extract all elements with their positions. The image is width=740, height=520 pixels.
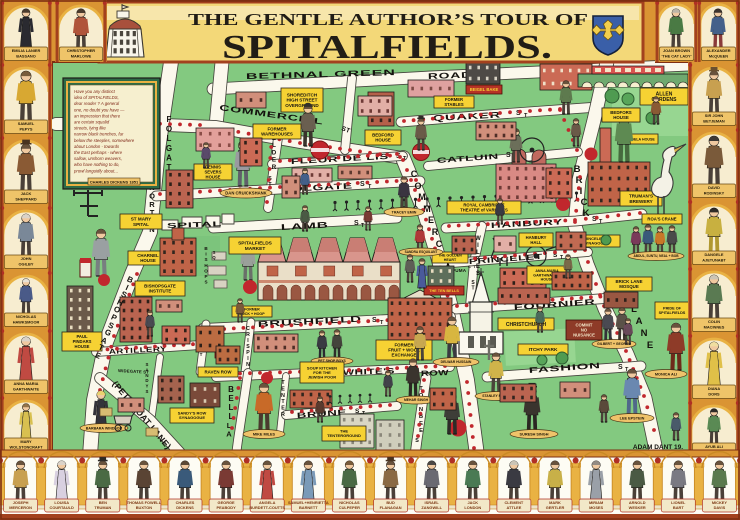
svg-text:OGILBY: OGILBY — [19, 262, 34, 267]
svg-text:ATTLEE: ATTLEE — [506, 505, 521, 510]
svg-text:OVERGROUND: OVERGROUND — [285, 103, 319, 108]
svg-text:T: T — [471, 286, 474, 292]
svg-text:E: E — [272, 157, 276, 164]
svg-text:TRACEY EMIN: TRACEY EMIN — [392, 210, 417, 214]
svg-text:JOHN: JOHN — [21, 256, 32, 261]
svg-text:HOUSE: HOUSE — [375, 138, 391, 143]
svg-text:A: A — [166, 153, 172, 162]
svg-text:L: L — [476, 250, 480, 256]
svg-text:ITCHY PARK: ITCHY PARK — [529, 347, 558, 353]
svg-text:CT: CT — [468, 264, 478, 269]
svg-text:RODINSKY: RODINSKY — [704, 191, 725, 196]
svg-text:HALL: HALL — [530, 240, 542, 245]
svg-text:BEIGEL BAKE: BEIGEL BAKE — [470, 87, 499, 92]
svg-text:ALEXANDER: ALEXANDER — [706, 48, 730, 53]
svg-text:who have nothing to do,: who have nothing to do, — [74, 162, 120, 167]
svg-text:MARLOWE: MARLOWE — [71, 54, 92, 59]
svg-text:HOUSE: HOUSE — [613, 115, 629, 120]
svg-text:T: T — [560, 255, 566, 261]
svg-text:streets, lying like: streets, lying like — [74, 126, 106, 131]
svg-text:L: L — [229, 403, 234, 412]
svg-text:SANDRA ESQUILANT: SANDRA ESQUILANT — [405, 250, 438, 254]
svg-text:A: A — [636, 316, 643, 327]
svg-text:A: A — [226, 430, 232, 439]
svg-text:JEWISH POOR: JEWISH POOR — [308, 375, 336, 380]
svg-text:MARKET: MARKET — [245, 246, 266, 252]
svg-text:narrow black trenches, far: narrow black trenches, far — [74, 132, 124, 137]
svg-text:WOLSTONCRAFT: WOLSTONCRAFT — [10, 445, 44, 450]
svg-text:NICHOLAS: NICHOLAS — [16, 314, 37, 319]
svg-text:R: R — [281, 412, 285, 418]
svg-text:E: E — [281, 386, 285, 392]
svg-text:N: N — [281, 393, 285, 399]
svg-text:R: R — [432, 227, 439, 237]
svg-text:LONDON: LONDON — [464, 505, 481, 510]
svg-text:AYUB ALI: AYUB ALI — [705, 444, 723, 449]
svg-text:E: E — [281, 406, 285, 412]
svg-text:DAVIS: DAVIS — [714, 505, 726, 510]
svg-text:S: S — [146, 389, 149, 394]
svg-text:MEHAR SINGH: MEHAR SINGH — [404, 398, 429, 402]
svg-text:COLIN: COLIN — [708, 319, 720, 324]
svg-text:E: E — [228, 394, 234, 403]
svg-text:BURDETT-COUTTS: BURDETT-COUTTS — [249, 505, 285, 510]
svg-text:CHARLES DICKENS 1851: CHARLES DICKENS 1851 — [90, 179, 139, 184]
svg-text:BETJEMAN: BETJEMAN — [703, 119, 725, 124]
svg-text:ROA'S CRANE: ROA'S CRANE — [647, 217, 676, 222]
svg-text:ZANGWILL: ZANGWILL — [421, 505, 442, 510]
svg-text:PEABODY: PEABODY — [216, 505, 236, 510]
svg-text:WAREHOUSES: WAREHOUSES — [261, 132, 293, 137]
svg-text:one, no doubt you have —: one, no doubt you have — — [74, 107, 125, 112]
svg-text:sallow, unshorn weavers,: sallow, unshorn weavers, — [74, 156, 122, 161]
svg-text:HOUSE: HOUSE — [206, 174, 221, 179]
svg-text:ABDUL, SUNTU, NEAL + BOB: ABDUL, SUNTU, NEAL + BOB — [633, 254, 679, 258]
svg-text:WESKER: WESKER — [629, 505, 646, 510]
svg-text:O: O — [204, 268, 208, 273]
svg-text:S: S — [146, 362, 149, 367]
svg-text:prowl languidly about...: prowl languidly about... — [73, 168, 118, 173]
svg-text:SPITAL: SPITAL — [133, 222, 149, 227]
svg-text:idea of SPITALFIELDS,: idea of SPITALFIELDS, — [74, 95, 119, 100]
svg-text:DIANA: DIANA — [708, 386, 721, 391]
svg-text:L: L — [167, 134, 172, 143]
svg-text:AJETUNABT: AJETUNABT — [702, 258, 726, 263]
svg-text:Y: Y — [146, 384, 149, 389]
svg-text:McQUEEN: McQUEEN — [709, 54, 728, 59]
svg-text:S: S — [204, 280, 207, 285]
svg-text:BUXTON: BUXTON — [136, 505, 153, 510]
svg-text:ANNA MARIA: ANNA MARIA — [14, 381, 39, 386]
svg-text:MARY: MARY — [20, 439, 32, 444]
svg-text:T: T — [599, 219, 605, 225]
svg-text:DORS: DORS — [708, 392, 720, 397]
svg-text:an impression that there: an impression that there — [74, 113, 121, 118]
svg-text:O: O — [166, 125, 172, 134]
svg-text:C: C — [581, 197, 588, 208]
svg-text:THE GENTLE AUTHOR’S TOUR OF: THE GENTLE AUTHOR’S TOUR OF — [188, 10, 588, 29]
svg-text:E: E — [647, 340, 653, 351]
svg-text:JOAN BROWN: JOAN BROWN — [663, 48, 690, 53]
svg-text:Have you any distinct: Have you any distinct — [74, 89, 116, 94]
svg-text:DELWAR HUSSAIN: DELWAR HUSSAIN — [441, 360, 472, 364]
svg-text:N: N — [246, 362, 250, 368]
svg-text:TENTERGROUND: TENTERGROUND — [327, 433, 361, 438]
svg-text:are certain squalid: are certain squalid — [74, 120, 110, 125]
svg-text:JACK: JACK — [21, 191, 32, 196]
svg-text:BARNETT: BARNETT — [299, 505, 318, 510]
svg-text:DICKENS: DICKENS — [176, 505, 194, 510]
svg-text:BARBARA WINDSOR: BARBARA WINDSOR — [86, 426, 123, 430]
svg-text:P: P — [204, 274, 207, 279]
svg-text:THE TEN BELLS: THE TEN BELLS — [429, 289, 459, 293]
svg-text:T: T — [380, 320, 386, 326]
svg-text:dear reader ? A general: dear reader ? A general — [74, 101, 120, 106]
svg-text:MOSES: MOSES — [589, 505, 603, 510]
svg-text:D: D — [145, 378, 148, 383]
svg-text:CULPEPER: CULPEPER — [339, 505, 360, 510]
svg-text:D: D — [272, 149, 277, 156]
svg-text:BART: BART — [673, 505, 684, 510]
svg-text:S: S — [415, 438, 419, 444]
svg-text:C: C — [436, 239, 443, 249]
svg-text:MOSQUE: MOSQUE — [619, 284, 639, 289]
svg-text:the East perhaps - where: the East perhaps - where — [74, 150, 123, 155]
svg-text:MONICA ALI: MONICA ALI — [655, 372, 677, 376]
svg-text:GERTLER: GERTLER — [546, 505, 565, 510]
svg-text:DANGELE: DANGELE — [704, 252, 723, 257]
svg-text:SURESH SINGH: SURESH SINGH — [520, 432, 549, 436]
svg-text:DAN CRUICKSHANK: DAN CRUICKSHANK — [225, 191, 266, 196]
svg-text:CHRISTOPHER: CHRISTOPHER — [67, 48, 95, 53]
svg-text:GARTHWAITE: GARTHWAITE — [13, 387, 40, 392]
svg-text:TRUMAN: TRUMAN — [94, 505, 111, 510]
svg-text:N: N — [145, 373, 148, 378]
svg-text:SHEPPARD: SHEPPARD — [15, 197, 37, 202]
svg-text:HOUSE: HOUSE — [75, 344, 90, 349]
svg-text:STABLES: STABLES — [444, 102, 463, 107]
svg-text:S: S — [204, 257, 207, 262]
svg-text:G: G — [166, 144, 172, 153]
svg-text:HAWKSMOOR: HAWKSMOOR — [13, 320, 40, 325]
svg-text:below the steeples, somewhere: below the steeples, somewhere — [74, 138, 135, 143]
svg-text:PRIDE OF: PRIDE OF — [663, 307, 682, 311]
svg-text:ROW: ROW — [421, 368, 450, 378]
svg-text:E: E — [419, 428, 423, 434]
svg-text:FLANAGAN: FLANAGAN — [380, 505, 402, 510]
svg-text:C: C — [411, 169, 418, 179]
svg-text:PEPYS: PEPYS — [20, 127, 33, 132]
svg-text:E: E — [428, 215, 434, 225]
svg-text:B: B — [228, 385, 234, 394]
svg-text:T: T — [524, 113, 530, 119]
svg-text:SIR JOHN: SIR JOHN — [705, 113, 724, 118]
svg-text:RAVEN ROW: RAVEN ROW — [205, 370, 233, 375]
svg-text:B: B — [574, 164, 581, 175]
svg-text:INSTITUTE: INSTITUTE — [149, 289, 172, 294]
svg-text:T: T — [200, 352, 203, 357]
svg-text:about London - towards: about London - towards — [74, 144, 120, 149]
svg-text:MIKE MILES: MIKE MILES — [253, 432, 276, 436]
svg-text:N: N — [641, 328, 648, 339]
svg-text:SYNAGOGUE: SYNAGOGUE — [179, 415, 205, 420]
svg-text:HOUSE: HOUSE — [140, 258, 156, 263]
svg-text:EXCHANGE: EXCHANGE — [392, 353, 417, 358]
svg-text:HEART: HEART — [444, 258, 457, 262]
svg-text:BASSANO: BASSANO — [16, 54, 35, 59]
svg-text:LEE EPSTEIN: LEE EPSTEIN — [620, 416, 645, 420]
svg-text:T: T — [368, 184, 374, 190]
svg-text:COURTAULD: COURTAULD — [50, 505, 75, 510]
svg-text:R: R — [272, 164, 277, 171]
svg-text:SPITALFIELDS: SPITALFIELDS — [659, 311, 686, 315]
svg-text:SAMUEL: SAMUEL — [18, 121, 35, 126]
svg-text:MACINNES: MACINNES — [704, 325, 725, 330]
svg-text:SPITALFIELDS: SPITALFIELDS — [238, 241, 273, 247]
svg-text:ROAD: ROAD — [428, 70, 472, 81]
svg-text:SPITALFIELDS.: SPITALFIELDS. — [222, 29, 552, 66]
svg-text:'THE CAT LADY': 'THE CAT LADY' — [661, 54, 691, 59]
svg-text:MERCERON: MERCERON — [9, 505, 32, 510]
svg-text:DAVID: DAVID — [708, 185, 720, 190]
svg-text:BREWERY: BREWERY — [629, 199, 652, 204]
svg-text:EMILIA LANIER: EMILIA LANIER — [12, 48, 41, 53]
svg-text:NUISANCE: NUISANCE — [573, 332, 595, 337]
svg-text:I: I — [205, 252, 206, 257]
